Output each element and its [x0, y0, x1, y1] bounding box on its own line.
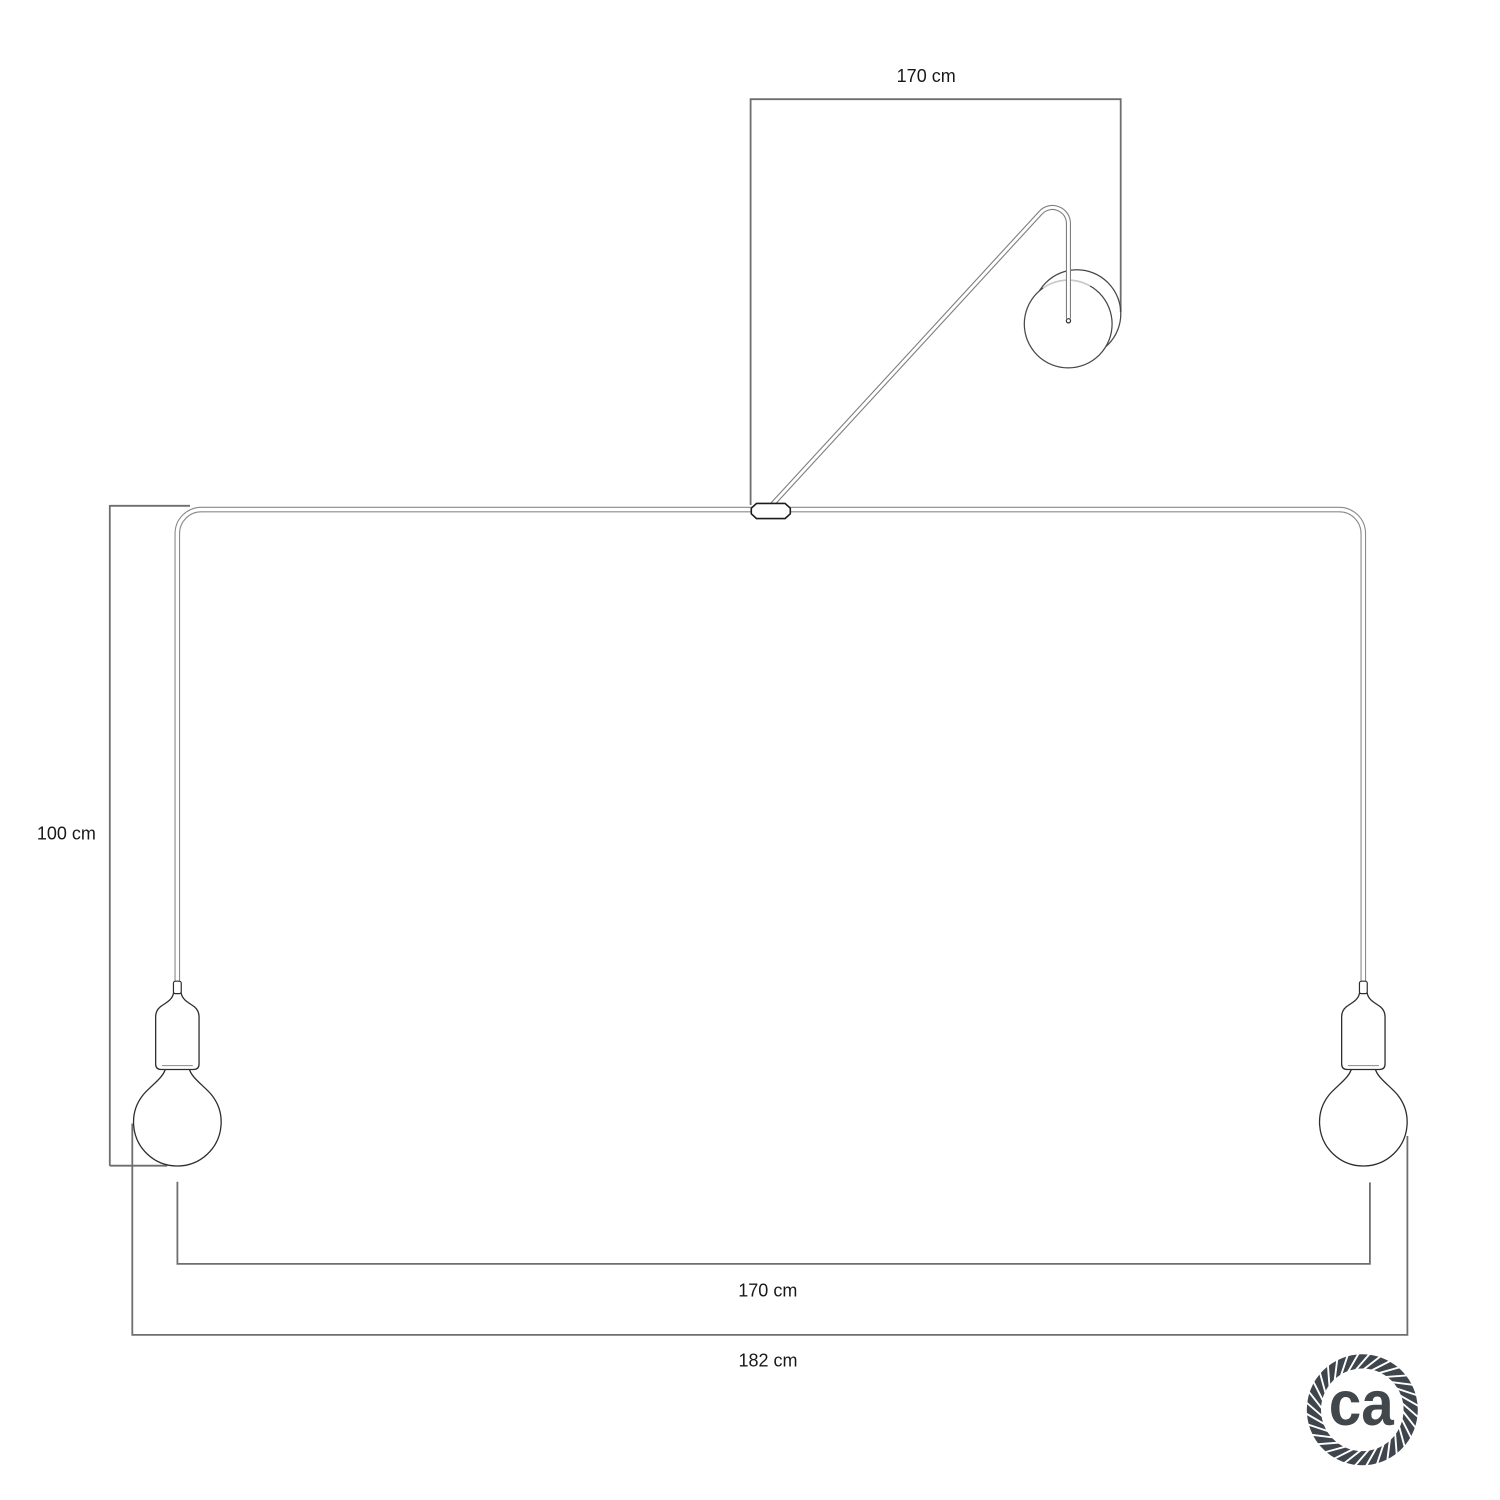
svg-text:ca: ca: [1329, 1369, 1395, 1439]
svg-text:170 cm: 170 cm: [738, 1281, 797, 1301]
svg-text:182 cm: 182 cm: [738, 1351, 797, 1371]
svg-text:100 cm: 100 cm: [37, 823, 96, 843]
svg-text:170 cm: 170 cm: [897, 66, 956, 86]
